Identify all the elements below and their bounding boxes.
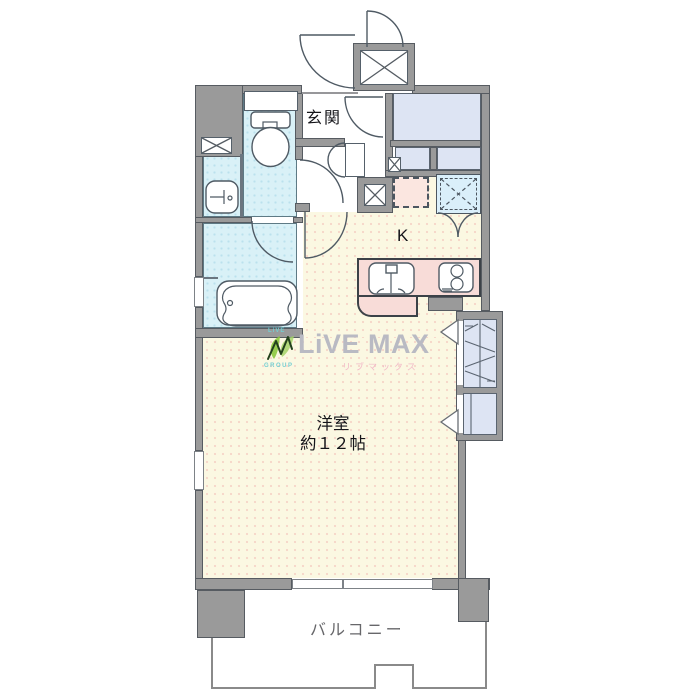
balcony-window bbox=[292, 579, 433, 589]
washbasin-floor bbox=[203, 154, 244, 217]
logo-group-text: GROUP bbox=[264, 363, 294, 369]
room-name: 洋室 bbox=[273, 414, 393, 434]
toilet-shelf bbox=[244, 91, 298, 111]
logo-kana-text: リブマックス bbox=[342, 360, 420, 373]
room-label: 洋室 約１２帖 bbox=[273, 414, 393, 454]
toilet-room-floor bbox=[243, 93, 297, 217]
wall-right-mid bbox=[458, 437, 466, 590]
wall-top-right bbox=[412, 85, 490, 94]
room-side-window bbox=[194, 451, 204, 490]
livemax-leaf-icon bbox=[264, 333, 298, 361]
refrigerator-space bbox=[393, 177, 429, 208]
washroom-divider-line bbox=[240, 154, 243, 217]
kitchen-label: K bbox=[397, 226, 408, 246]
shoe-cabinet bbox=[345, 143, 365, 177]
wall-washroom-bath-right bbox=[293, 217, 303, 223]
logo-main-text: LiVE MAX bbox=[298, 329, 430, 360]
wall-balcony-right-block bbox=[458, 578, 489, 622]
balcony-window-mullion bbox=[342, 579, 344, 589]
wall-bottom-left bbox=[195, 578, 292, 590]
wall-storage-divider-v bbox=[430, 147, 437, 170]
genkan-label: 玄関 bbox=[306, 104, 342, 128]
closet-upper-opening bbox=[457, 321, 463, 385]
kitchen-counter bbox=[357, 258, 481, 297]
room-floor bbox=[203, 338, 458, 578]
balcony-notch bbox=[374, 664, 414, 689]
floor-plan: 玄関 K 洋室 約１２帖 バルコニー LiVE GROUP LiVE MAX リ… bbox=[0, 0, 700, 700]
bath-ledge-line bbox=[203, 277, 218, 279]
livemax-watermark: LiVE GROUP LiVE MAX リブマックス bbox=[262, 328, 447, 372]
elevator-shaft bbox=[360, 50, 408, 85]
wall-storage-divider-h bbox=[390, 140, 481, 147]
pipe-shaft-hall bbox=[364, 184, 386, 206]
balcony-label: バルコニー bbox=[310, 616, 405, 640]
storage-room-lower-right bbox=[437, 147, 481, 170]
genkan-door-arc bbox=[345, 97, 383, 137]
wall-under-stove bbox=[428, 297, 463, 311]
pipe-shaft-small bbox=[388, 157, 401, 172]
closet-lower-opening bbox=[457, 395, 463, 433]
wall-washroom-bath-left bbox=[195, 217, 252, 223]
wall-balcony-left-block bbox=[197, 590, 245, 638]
wall-genkan-step bbox=[295, 138, 345, 147]
closet-upper bbox=[463, 319, 497, 388]
shoe-cabinet-door-arcs bbox=[328, 143, 345, 177]
closet-lower bbox=[463, 393, 497, 435]
kitchen-counter-return bbox=[357, 297, 418, 317]
bathroom-window bbox=[194, 277, 204, 307]
wall-right-upper bbox=[481, 93, 490, 311]
entry-threshold-line bbox=[302, 92, 358, 94]
washer-space-inner bbox=[440, 178, 477, 210]
pipe-shaft-left bbox=[201, 137, 232, 154]
storage-room-upper bbox=[393, 93, 481, 141]
washroom-door-arc bbox=[300, 160, 343, 203]
wall-hall-kitchen bbox=[295, 203, 310, 212]
wall-left-lower bbox=[195, 490, 203, 590]
bathroom-floor bbox=[203, 223, 297, 328]
room-size: 約１２帖 bbox=[273, 434, 393, 454]
